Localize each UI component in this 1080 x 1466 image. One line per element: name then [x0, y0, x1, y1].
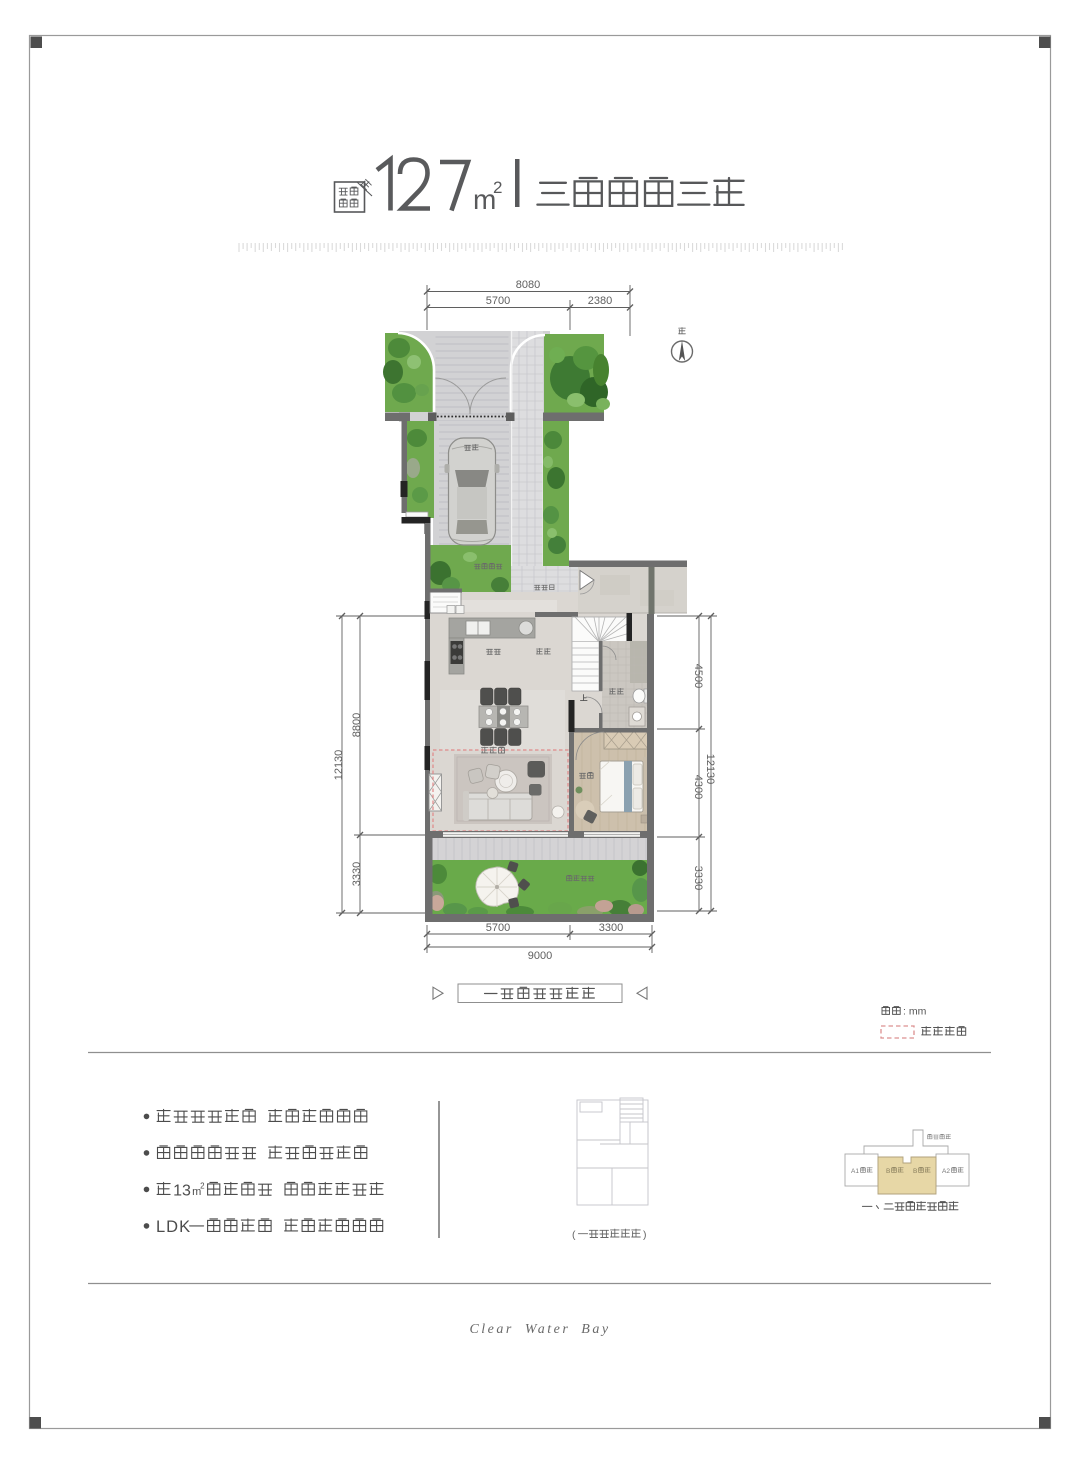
svg-text:LDK: LDK	[156, 1218, 191, 1236]
svg-text:2: 2	[200, 1181, 205, 1190]
svg-text:(: (	[572, 1229, 576, 1241]
svg-text:4300: 4300	[692, 775, 704, 799]
svg-text:9000: 9000	[528, 950, 552, 962]
svg-text:5700: 5700	[486, 922, 510, 934]
svg-text:B: B	[913, 1168, 917, 1175]
svg-text:3330: 3330	[692, 866, 704, 890]
svg-text:A1: A1	[851, 1168, 859, 1175]
svg-text:2380: 2380	[588, 295, 612, 307]
svg-text:12130: 12130	[704, 754, 716, 785]
svg-text:8800: 8800	[351, 713, 363, 737]
svg-text:5700: 5700	[486, 295, 510, 307]
svg-text:B: B	[886, 1168, 890, 1175]
svg-text:Clear Water Bay: Clear Water Bay	[469, 1322, 610, 1337]
svg-text:): )	[643, 1229, 647, 1241]
svg-text:13: 13	[173, 1183, 191, 1200]
svg-text:12130: 12130	[333, 750, 345, 781]
svg-text:2: 2	[493, 178, 502, 197]
svg-text:: mm: : mm	[903, 1006, 927, 1018]
svg-text:3300: 3300	[599, 922, 623, 934]
svg-text:8080: 8080	[516, 279, 540, 291]
svg-text:3330: 3330	[351, 862, 363, 886]
svg-text:4500: 4500	[692, 664, 704, 688]
svg-text:A2: A2	[942, 1168, 950, 1175]
